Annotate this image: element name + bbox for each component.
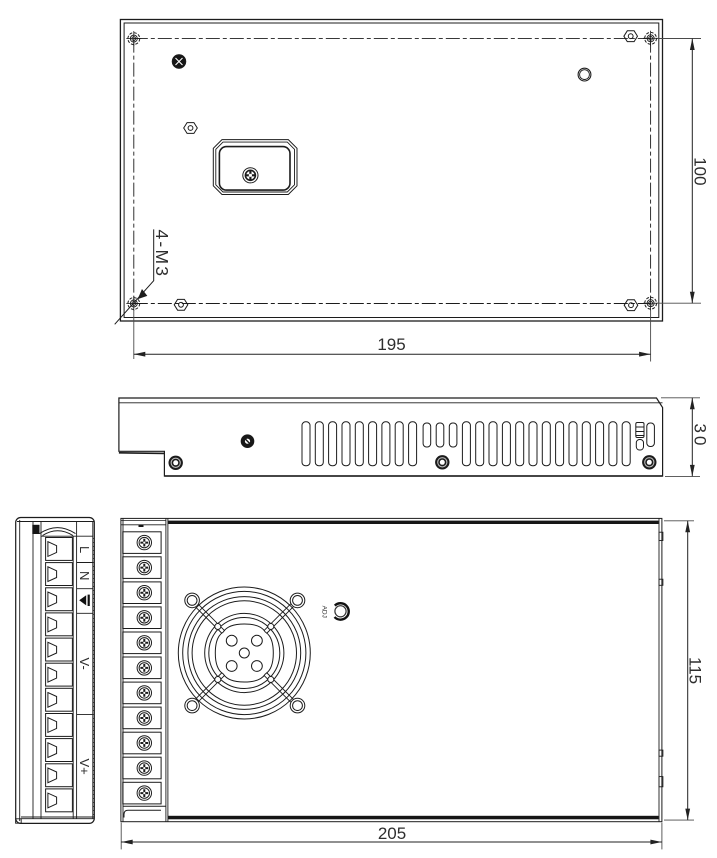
svg-text:205: 205 [378, 824, 406, 843]
svg-text:V-: V- [77, 658, 92, 670]
svg-text:N: N [77, 571, 92, 580]
svg-text:115: 115 [686, 657, 705, 684]
svg-text:ADJ: ADJ [321, 606, 328, 618]
svg-text:100: 100 [690, 157, 709, 185]
svg-text:4-M3: 4-M3 [152, 230, 172, 279]
svg-text:195: 195 [377, 335, 405, 354]
svg-text:L: L [77, 546, 92, 553]
svg-text:30: 30 [690, 424, 709, 449]
svg-text:V+: V+ [77, 759, 92, 775]
